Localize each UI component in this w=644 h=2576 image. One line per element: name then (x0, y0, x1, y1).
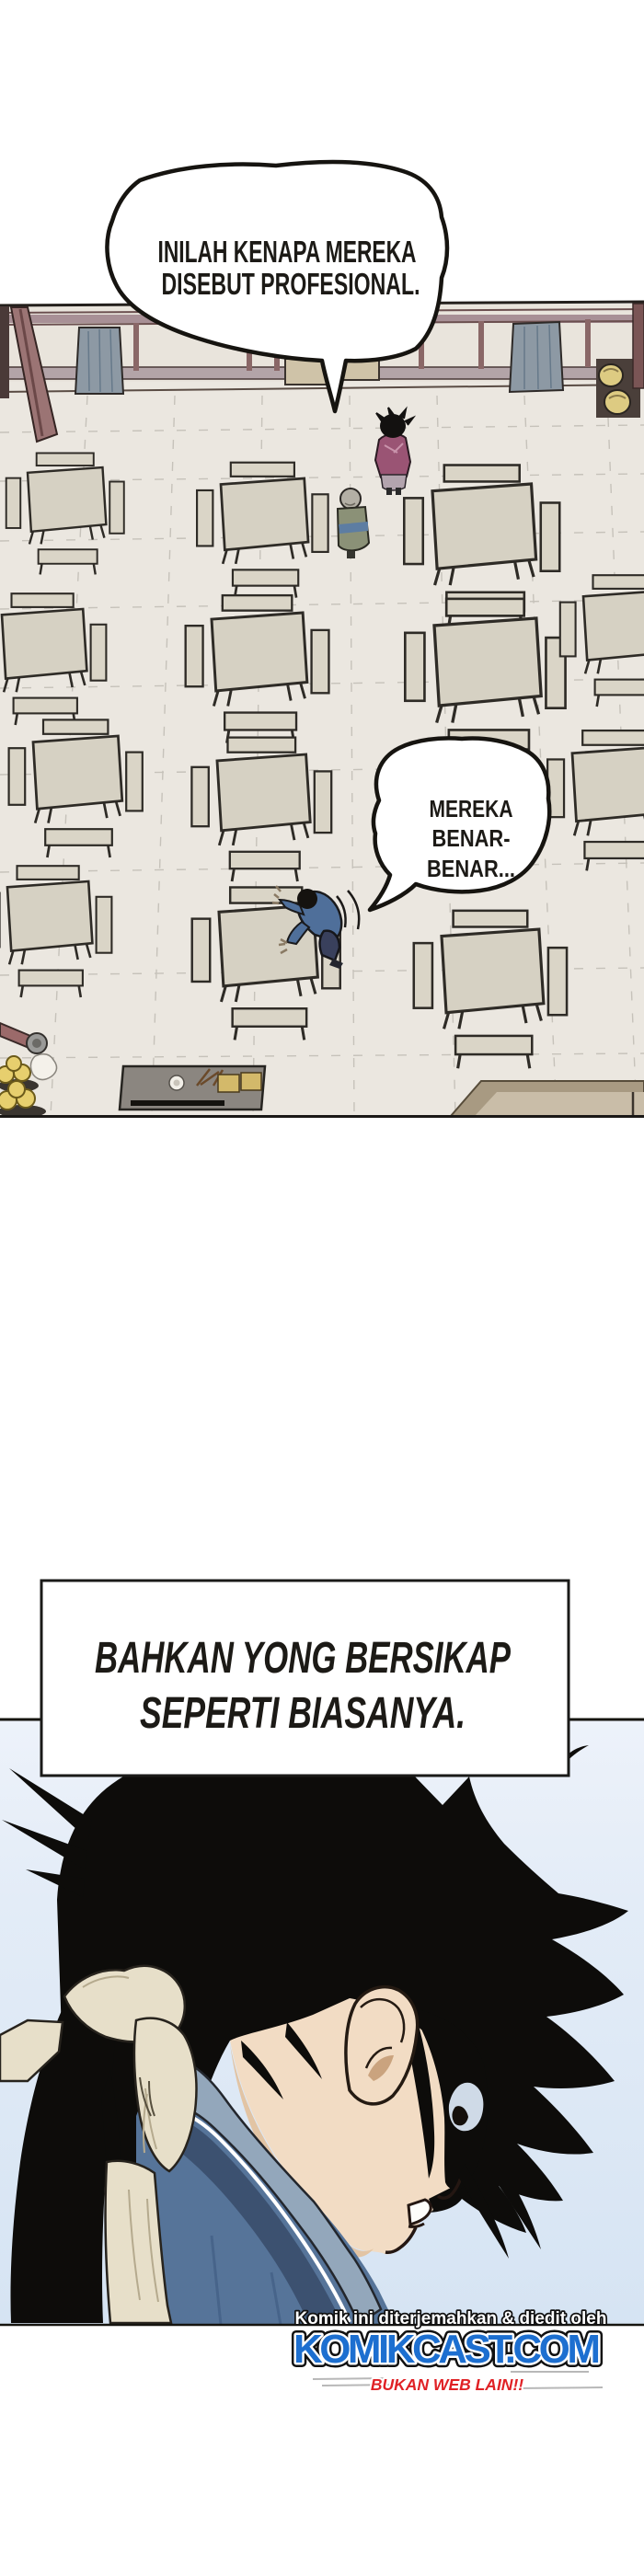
svg-text:BENAR-: BENAR- (432, 824, 511, 852)
svg-text:BUKAN WEB LAIN!!: BUKAN WEB LAIN!! (371, 2375, 523, 2394)
svg-text:INILAH KENAPA MEREKA: INILAH KENAPA MEREKA (158, 235, 417, 269)
svg-text:DISEBUT PROFESIONAL.: DISEBUT PROFESIONAL. (162, 267, 420, 301)
svg-text:Komik ini diterjemahkan & died: Komik ini diterjemahkan & diedit oleh (295, 2309, 607, 2329)
svg-text:BAHKAN YONG BERSIKAP: BAHKAN YONG BERSIKAP (95, 1634, 512, 1683)
svg-text:KOMIKCAST.COM: KOMIKCAST.COM (293, 2327, 601, 2372)
svg-text:MEREKA: MEREKA (430, 795, 513, 822)
svg-text:SEPERTI BIASANYA.: SEPERTI BIASANYA. (140, 1689, 466, 1738)
svg-text:BENAR...: BENAR... (427, 855, 515, 882)
